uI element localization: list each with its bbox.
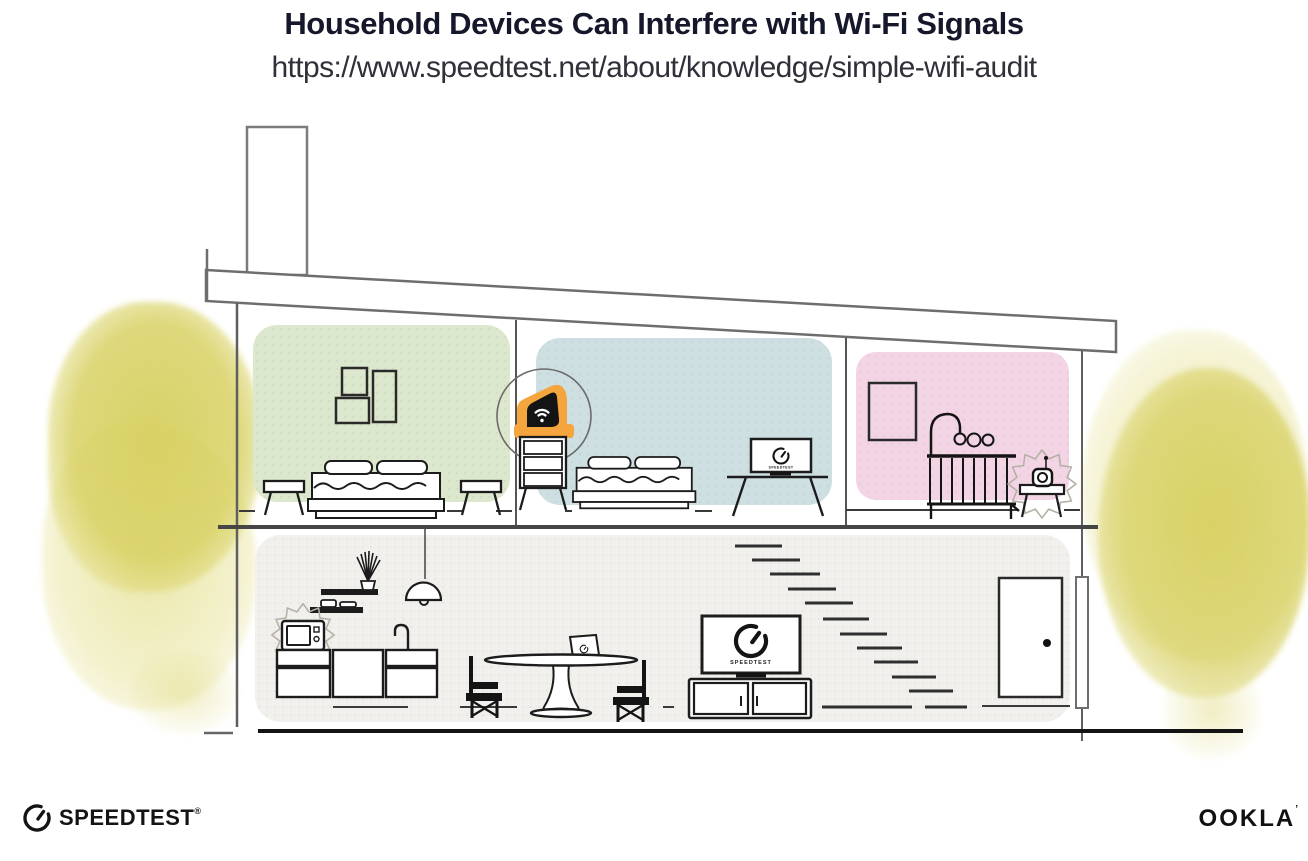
entry-door <box>999 578 1062 697</box>
baby-monitor-icon <box>1033 456 1052 486</box>
dresser <box>520 437 566 510</box>
infographic-page: Household Devices Can Interfere with Wi-… <box>0 0 1308 861</box>
dining-chair <box>613 660 649 722</box>
registered-mark: ® <box>194 806 201 816</box>
picture-frame <box>869 383 916 440</box>
dining-area <box>466 635 649 722</box>
speedtest-wordmark: SPEEDTEST® <box>59 805 201 831</box>
tv-area: SPEEDTEST <box>689 616 811 718</box>
crib <box>927 414 1019 519</box>
tv-stand <box>736 673 766 678</box>
bed <box>308 461 444 518</box>
door-knob <box>1043 639 1051 647</box>
microwave-icon <box>282 621 324 650</box>
pink-nursery <box>869 383 1076 519</box>
green-bedroom <box>264 368 501 518</box>
chimney <box>247 127 307 275</box>
ookla-logo: OOKLA’ <box>1199 805 1300 833</box>
picture-frames <box>336 368 396 423</box>
nightstand <box>461 481 501 515</box>
kitchen <box>272 527 441 697</box>
speedtest-gauge-icon <box>22 803 52 833</box>
roof <box>206 270 1116 352</box>
dining-chair <box>466 656 502 718</box>
ookla-mark: ’ <box>1295 804 1300 815</box>
desk-monitor: SPEEDTEST <box>727 439 828 516</box>
monitor-screen-label: SPEEDTEST <box>769 466 794 470</box>
blue-bedroom: SPEEDTEST <box>497 369 828 516</box>
mobile-ball <box>983 435 994 446</box>
mobile-ball <box>968 434 981 447</box>
nightstand <box>264 481 304 515</box>
mobile-ball <box>955 434 966 445</box>
plant-icon <box>357 551 380 590</box>
faucet-icon <box>395 625 408 650</box>
downspout <box>1076 577 1088 708</box>
house-cross-section: SPEEDTEST <box>0 0 1308 861</box>
bed <box>573 457 695 508</box>
cups <box>321 600 356 607</box>
pendant-lamp-icon <box>406 527 441 605</box>
speedtest-logo: SPEEDTEST® <box>22 803 201 833</box>
tv-screen-label: SPEEDTEST <box>730 660 772 666</box>
media-console <box>689 679 811 718</box>
